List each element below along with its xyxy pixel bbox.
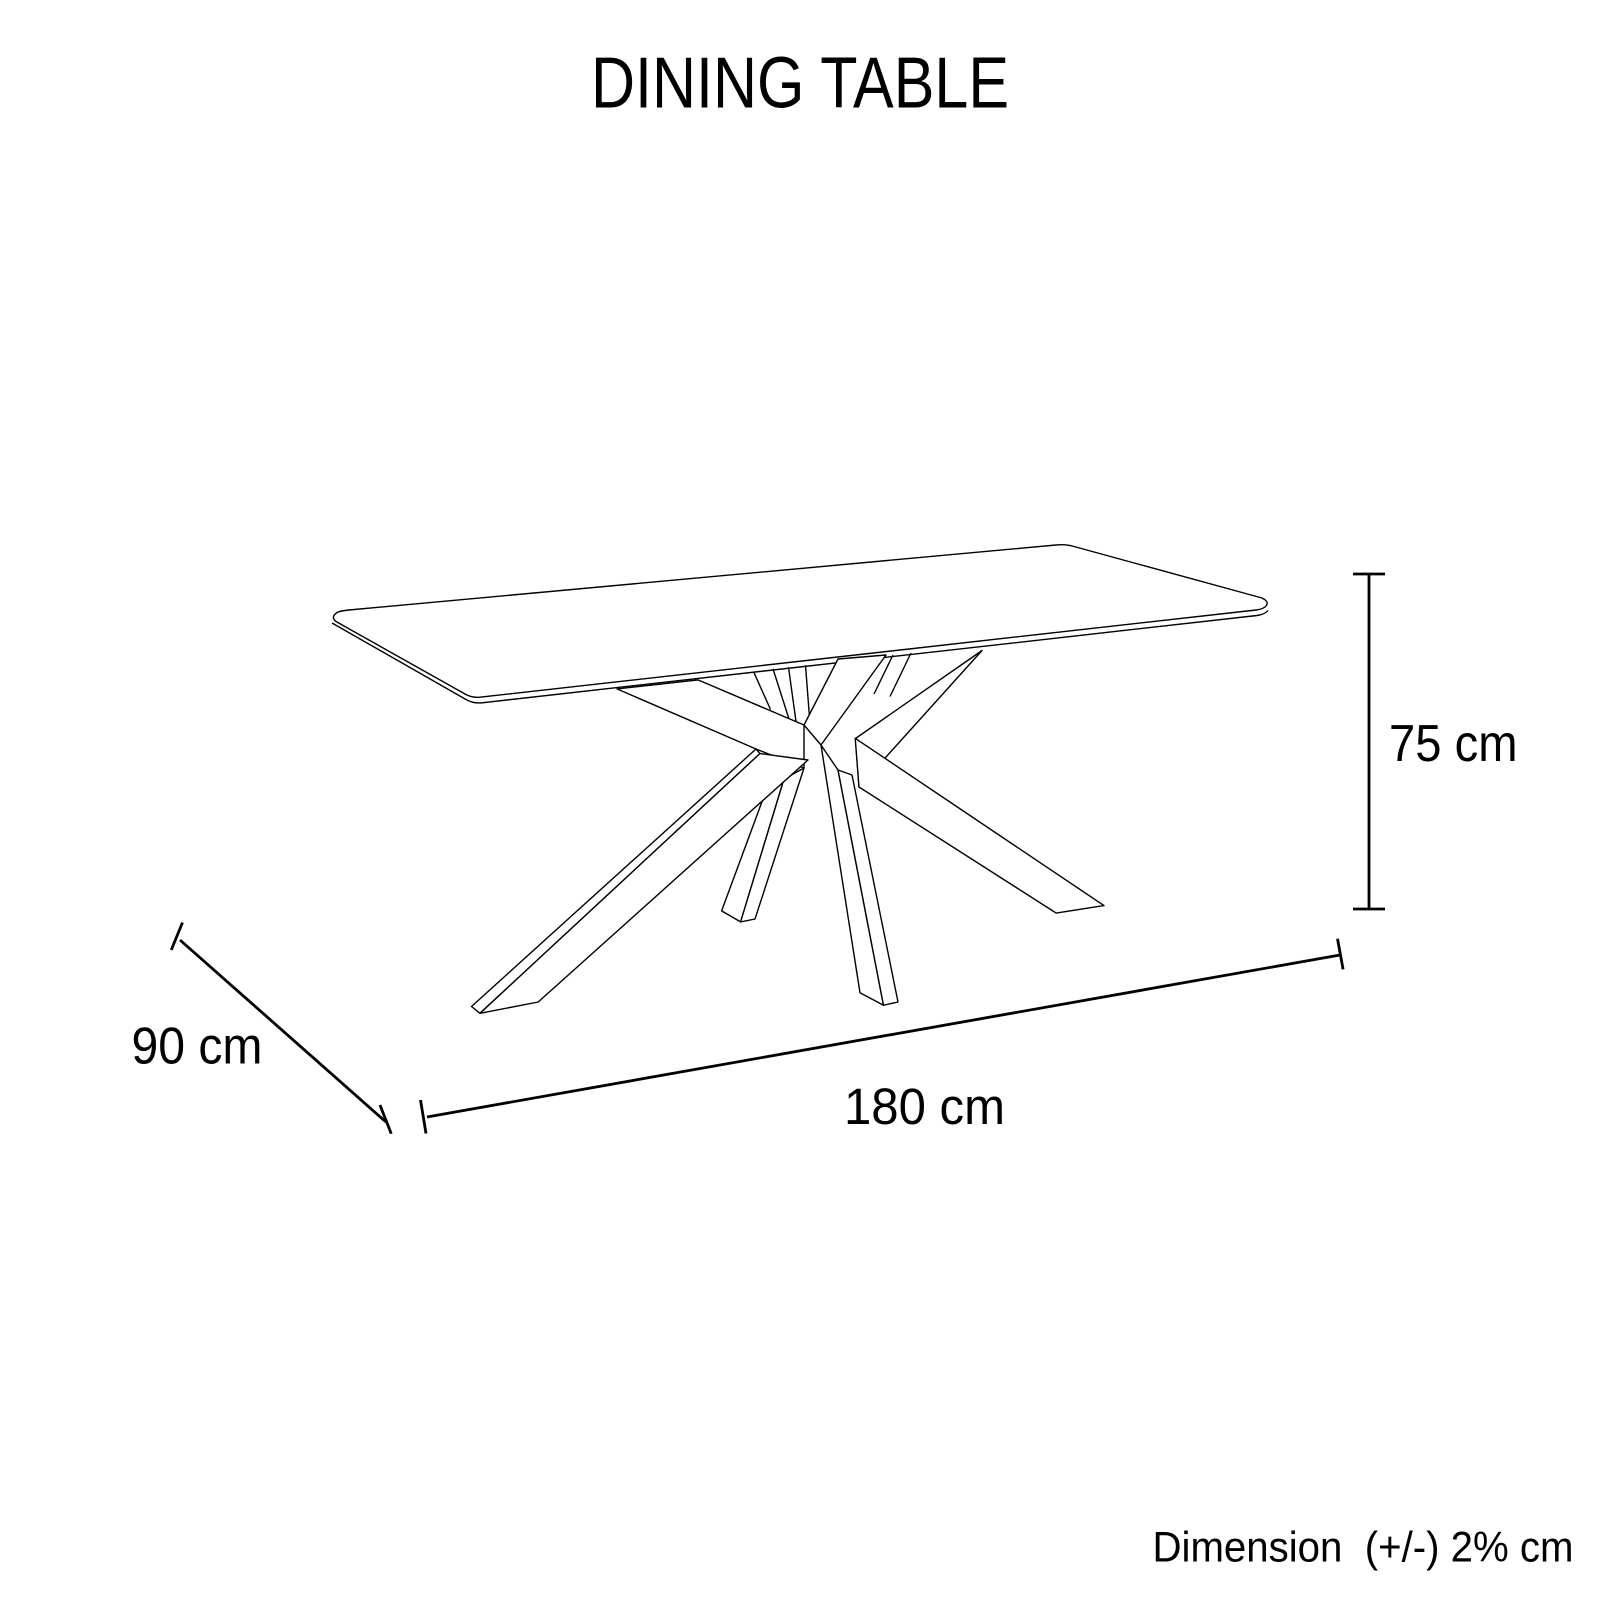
- svg-text:75 cm: 75 cm: [1389, 715, 1518, 773]
- svg-text:Dimension (+/-) 2% cm: Dimension (+/-) 2% cm: [1153, 1525, 1574, 1572]
- svg-text:180 cm: 180 cm: [844, 1078, 1005, 1135]
- svg-text:90 cm: 90 cm: [132, 1018, 263, 1076]
- svg-text:DINING TABLE: DINING TABLE: [591, 44, 1009, 124]
